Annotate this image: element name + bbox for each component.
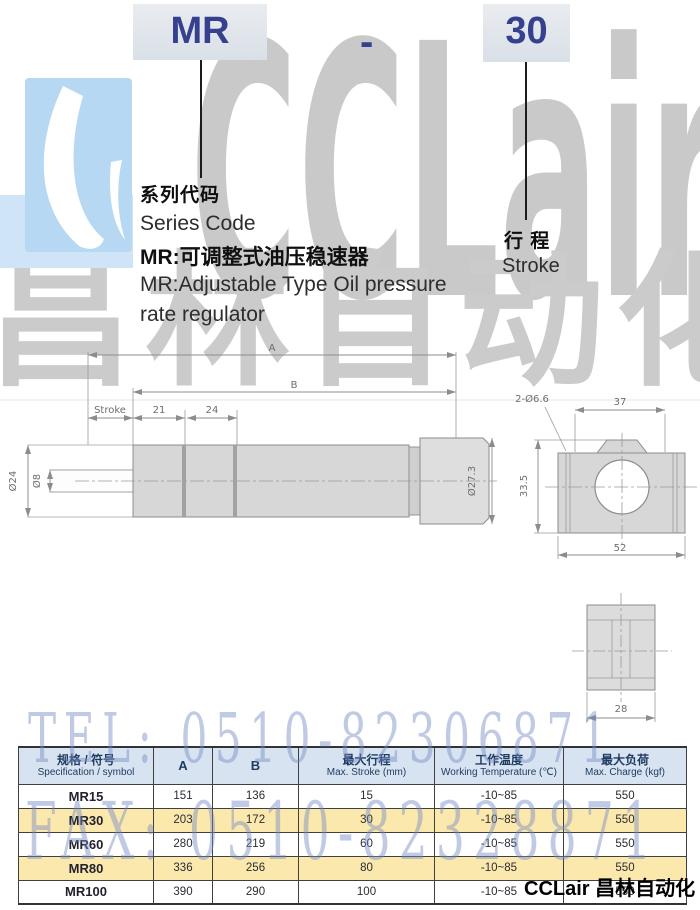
dim-label-33-5: 33.5 [519, 475, 530, 497]
company-logo [25, 78, 132, 252]
cell-model: MR100 [19, 880, 154, 904]
technical-drawing: A B Stroke 21 24 Ø24 Ø8 Ø27.3 [0, 340, 700, 730]
series-label-en: Series Code [140, 212, 256, 236]
series-description-cn: MR:可调整式油压稳速器 [140, 241, 369, 271]
fax-watermark: FAX: 0510-82328871 [25, 792, 659, 872]
dim-label-28: 28 [615, 704, 628, 715]
cell-a: 390 [154, 880, 213, 904]
series-description-en-line2: rate regulator [140, 303, 265, 327]
logo-swoosh-icon [25, 78, 132, 252]
datasheet-page: CCLair 昌林自动化 MR - 30 系列代码 Series Code MR… [0, 0, 700, 910]
dim-label-21: 21 [153, 405, 166, 416]
dim-label-52: 52 [614, 543, 627, 554]
stroke-callout-line [525, 62, 527, 220]
dim-label-dia24: Ø24 [7, 471, 19, 492]
dim-label-24: 24 [206, 405, 219, 416]
dim-label-A: A [269, 343, 276, 354]
stroke-label-en: Stroke [502, 255, 560, 278]
dim-label-holes: 2-Ø6.6 [515, 393, 549, 405]
tel-watermark: TEL: 0510-82306871 [28, 706, 615, 774]
stroke-label-cn: 行 程 [504, 226, 550, 253]
dim-label-37: 37 [614, 397, 627, 408]
series-callout-line [200, 60, 202, 178]
code-separator: - [360, 20, 373, 65]
series-label-cn: 系列代码 [140, 180, 220, 207]
series-description-en-line1: MR:Adjustable Type Oil pressure [140, 273, 447, 297]
dim-label-stroke: Stroke [94, 405, 126, 416]
series-code-box: MR [133, 4, 267, 60]
cell-max-stroke: 100 [299, 880, 435, 904]
cell-b: 290 [213, 880, 299, 904]
stroke-code-box: 30 [483, 4, 570, 62]
footer-brand-text: CCLair 昌林自动化 [524, 872, 695, 901]
dim-label-B: B [291, 380, 298, 391]
dim-label-dia8: Ø8 [31, 474, 43, 488]
